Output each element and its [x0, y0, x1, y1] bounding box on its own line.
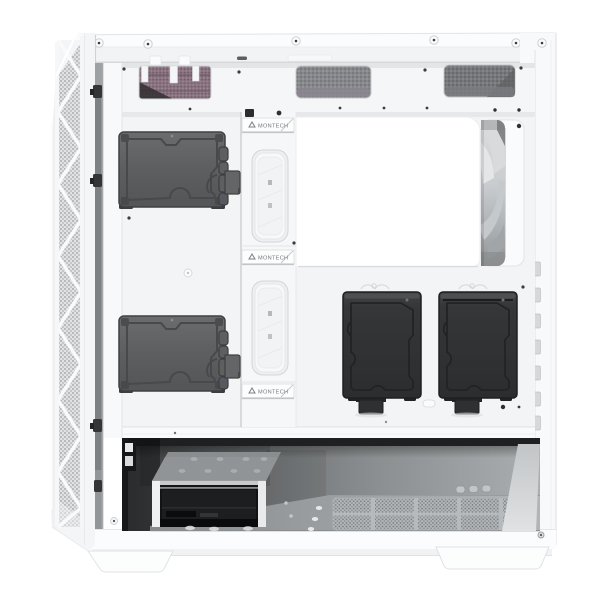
svg-text:MONTECH: MONTECH	[258, 256, 288, 262]
svg-text:MONTECH: MONTECH	[258, 390, 288, 396]
svg-text:MONTECH: MONTECH	[258, 124, 288, 130]
